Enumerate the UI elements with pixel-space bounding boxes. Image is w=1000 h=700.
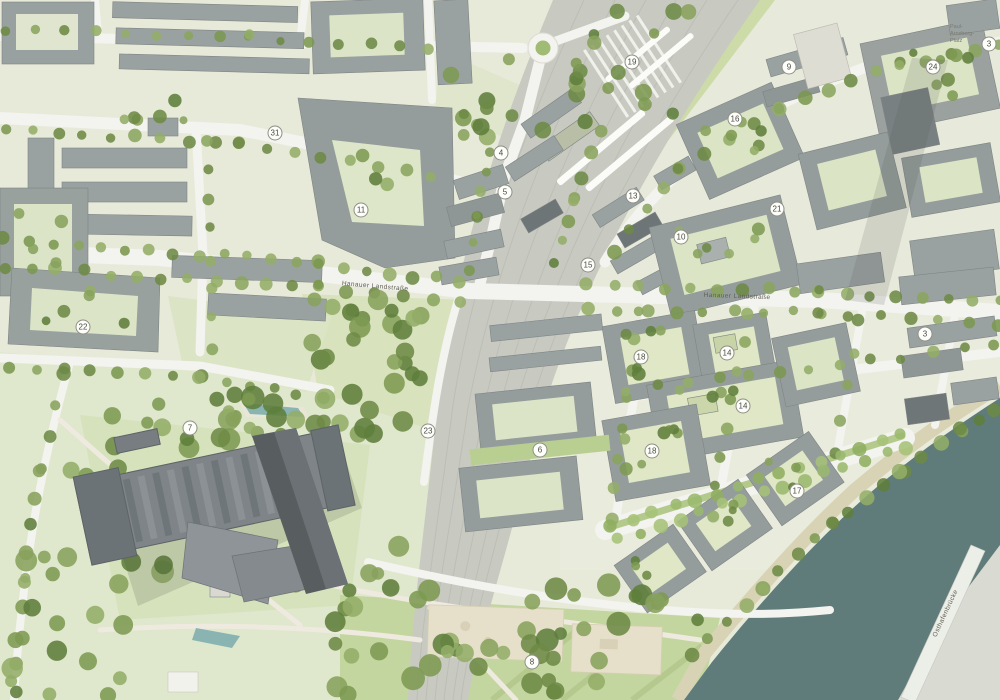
tree-icon <box>681 4 697 20</box>
tree-icon <box>602 82 614 94</box>
tree-icon <box>32 365 42 375</box>
tree-icon <box>642 204 652 214</box>
tree-icon <box>621 387 630 396</box>
tree-icon <box>263 393 284 414</box>
tree-icon <box>324 299 340 315</box>
tree-icon <box>168 371 178 381</box>
tree-icon <box>667 108 679 120</box>
tree-icon <box>183 136 196 149</box>
tree-icon <box>698 308 708 318</box>
tree-icon <box>47 641 67 661</box>
tree-icon <box>380 178 394 192</box>
tree-icon <box>714 372 726 384</box>
tree-icon <box>203 164 213 174</box>
tree-icon <box>360 401 379 420</box>
tree-icon <box>964 317 976 329</box>
tree-icon <box>152 398 165 411</box>
tree-icon <box>8 632 24 648</box>
tree-icon <box>396 343 414 361</box>
tree-icon <box>344 648 360 664</box>
tree-icon <box>405 310 422 327</box>
tree-icon <box>610 4 625 19</box>
tree-icon <box>947 90 958 101</box>
tree-icon <box>57 547 77 567</box>
tree-icon <box>53 128 65 140</box>
tree-icon <box>401 666 425 690</box>
tree-icon <box>624 224 634 234</box>
marker-number: 11 <box>357 206 366 215</box>
map-marker-7[interactable]: 7 <box>183 421 197 435</box>
tree-icon <box>143 244 155 256</box>
tree-icon <box>235 276 249 290</box>
tree-icon <box>0 263 11 274</box>
tree-icon <box>220 249 230 259</box>
tree-icon <box>206 343 218 355</box>
tree-icon <box>733 481 743 491</box>
tree-icon <box>307 293 321 307</box>
marker-number: 14 <box>739 402 748 411</box>
tree-icon <box>646 326 657 337</box>
tree-icon <box>645 593 665 613</box>
marker-number: 18 <box>648 447 657 456</box>
tree-icon <box>382 579 400 597</box>
tree-icon <box>422 44 433 55</box>
tree-icon <box>388 536 409 557</box>
tree-icon <box>14 208 25 219</box>
tree-icon <box>524 594 540 610</box>
tree-icon <box>578 114 593 129</box>
tree-icon <box>315 388 336 409</box>
tree-icon <box>728 386 739 397</box>
tree-icon <box>844 74 858 88</box>
tree-icon <box>56 366 70 380</box>
tree-icon <box>427 293 440 306</box>
tree-icon <box>743 370 754 381</box>
tree-icon <box>789 287 800 298</box>
tree-icon <box>792 548 805 561</box>
tree-icon <box>49 615 65 631</box>
tree-icon <box>182 273 192 283</box>
tree-icon <box>168 94 181 107</box>
tree-icon <box>562 215 576 229</box>
tree-icon <box>607 612 631 636</box>
place-label: Paul- <box>950 24 963 30</box>
tree-icon <box>342 384 363 405</box>
tree-icon <box>3 362 15 374</box>
tree-icon <box>962 52 974 64</box>
tree-icon <box>287 411 305 429</box>
tree-icon <box>633 280 644 291</box>
roundabout <box>528 33 558 63</box>
tree-icon <box>722 617 732 627</box>
tree-icon <box>120 115 130 125</box>
place-label: Arnsberg- <box>950 31 974 37</box>
tree-icon <box>752 223 765 236</box>
tree-icon <box>38 551 51 564</box>
tree-icon <box>303 37 314 48</box>
tree-icon <box>356 149 370 163</box>
tree-icon <box>597 573 620 596</box>
tree-icon <box>567 588 581 602</box>
tree-icon <box>817 465 830 478</box>
map-marker-10[interactable]: 10 <box>674 230 688 244</box>
tree-icon <box>987 404 1000 417</box>
tree-icon <box>741 308 753 320</box>
tree-icon <box>184 31 193 40</box>
tree-icon <box>211 428 231 448</box>
tree-icon <box>612 454 623 465</box>
tree-icon <box>106 271 116 281</box>
tree-icon <box>244 422 256 434</box>
tree-icon <box>659 284 671 296</box>
tree-icon <box>180 116 188 124</box>
tree-icon <box>313 258 324 269</box>
tree-icon <box>443 67 460 84</box>
map-marker-5[interactable]: 5 <box>498 185 512 199</box>
tree-icon <box>804 365 813 374</box>
tree-icon <box>617 423 627 433</box>
tree-icon <box>10 686 23 699</box>
tree-icon <box>345 155 356 166</box>
tree-icon <box>638 97 652 111</box>
tree-icon <box>835 360 845 370</box>
tree-icon <box>714 452 725 463</box>
tree-icon <box>325 611 346 632</box>
marker-number: 19 <box>628 58 637 67</box>
tree-icon <box>459 109 469 119</box>
tree-icon <box>949 49 963 63</box>
tree-icon <box>549 258 559 268</box>
tree-icon <box>654 519 668 533</box>
tree-icon <box>96 242 106 252</box>
tree-icon <box>214 31 226 43</box>
tree-icon <box>384 373 405 394</box>
tree-icon <box>401 164 414 177</box>
tree-icon <box>579 277 592 290</box>
tree-icon <box>20 573 30 583</box>
tree-icon <box>545 577 568 600</box>
tree-icon <box>426 172 436 182</box>
tree-icon <box>822 83 836 97</box>
tree-icon <box>262 144 272 154</box>
tree-icon <box>455 296 467 308</box>
tree-icon <box>46 567 60 581</box>
tree-icon <box>441 645 454 658</box>
tree-icon <box>406 271 420 285</box>
tree-icon <box>431 271 443 283</box>
tree-icon <box>620 462 633 475</box>
tree-icon <box>859 455 871 467</box>
tree-icon <box>242 251 251 260</box>
tree-icon <box>292 257 303 268</box>
map-marker-4[interactable]: 4 <box>494 146 508 160</box>
tree-icon <box>693 249 703 259</box>
tree-icon <box>342 584 356 598</box>
tree-icon <box>574 171 588 185</box>
tree-icon <box>554 627 567 640</box>
map-marker-15[interactable]: 15 <box>581 258 595 272</box>
tree-icon <box>899 441 913 455</box>
marker-number: 10 <box>677 233 686 242</box>
tree-icon <box>128 111 141 124</box>
tree-icon <box>693 506 703 516</box>
tree-icon <box>343 596 364 617</box>
tree-icon <box>627 514 639 526</box>
tree-icon <box>876 310 886 320</box>
tree-icon <box>865 354 876 365</box>
tree-icon <box>291 390 302 401</box>
tree-icon <box>568 195 579 206</box>
tree-icon <box>642 571 651 580</box>
marker-number: 3 <box>987 40 992 49</box>
tree-icon <box>338 262 350 274</box>
tree-icon <box>729 304 741 316</box>
marker-number: 5 <box>503 188 508 197</box>
tree-icon <box>909 49 917 57</box>
tree-icon <box>571 58 582 69</box>
tree-icon <box>688 494 703 509</box>
tree-icon <box>194 250 206 262</box>
marker-number: 31 <box>271 129 280 138</box>
tree-icon <box>77 130 86 139</box>
tree-icon <box>51 257 62 268</box>
map-marker-11[interactable]: 11 <box>354 203 368 217</box>
tree-icon <box>892 464 907 479</box>
tree-icon <box>835 450 845 460</box>
tree-icon <box>967 295 979 307</box>
map-marker-3[interactable]: 3 <box>982 37 996 51</box>
tree-icon <box>842 380 853 391</box>
tree-icon <box>631 562 640 571</box>
place-label: Platz <box>950 38 962 44</box>
tree-icon <box>33 465 46 478</box>
tree-icon <box>227 387 243 403</box>
tree-icon <box>205 256 216 267</box>
tree-icon <box>28 244 38 254</box>
tree-icon <box>750 146 759 155</box>
map-marker-3[interactable]: 3 <box>918 327 932 341</box>
tree-icon <box>418 580 440 602</box>
tree-icon <box>329 637 343 651</box>
map-marker-14[interactable]: 14 <box>720 346 734 360</box>
tree-icon <box>333 39 344 50</box>
tree-icon <box>581 302 595 316</box>
tree-icon <box>109 574 128 593</box>
tree-icon <box>155 133 166 144</box>
tree-icon <box>84 364 96 376</box>
map-marker-24[interactable]: 24 <box>926 60 940 74</box>
tree-icon <box>612 533 623 544</box>
tree-icon <box>871 65 883 77</box>
tree-icon <box>222 378 232 388</box>
tree-icon <box>480 639 498 657</box>
tree-icon <box>877 478 890 491</box>
tree-icon <box>141 417 153 429</box>
tree-icon <box>50 400 60 410</box>
tree-icon <box>405 366 420 381</box>
tree-icon <box>656 325 666 335</box>
tree-icon <box>889 290 902 303</box>
tree-icon <box>895 428 906 439</box>
map-marker-18[interactable]: 18 <box>634 350 648 364</box>
tree-icon <box>315 152 327 164</box>
tree-icon <box>503 53 515 65</box>
tree-icon <box>128 129 142 143</box>
marker-number: 17 <box>793 487 802 496</box>
tree-icon <box>206 283 217 294</box>
tree-icon <box>192 371 205 384</box>
map-marker-14[interactable]: 14 <box>736 399 750 413</box>
tree-icon <box>759 309 768 318</box>
marker-number: 23 <box>424 427 433 436</box>
tree-icon <box>368 290 388 310</box>
map-marker-21[interactable]: 21 <box>770 202 784 216</box>
tree-icon <box>111 366 124 379</box>
tree-icon <box>547 682 564 699</box>
tree-icon <box>456 644 474 662</box>
tree-icon <box>372 567 385 580</box>
tree-icon <box>883 447 893 457</box>
tree-icon <box>473 212 481 220</box>
tree-icon <box>700 125 711 136</box>
map-marker-9[interactable]: 9 <box>782 60 796 74</box>
tree-icon <box>318 349 335 366</box>
tree-icon <box>842 507 854 519</box>
tree-icon <box>587 36 601 50</box>
tree-icon <box>673 163 684 174</box>
marker-number: 7 <box>188 424 193 433</box>
tree-icon <box>472 118 489 135</box>
tree-icon <box>621 329 632 340</box>
tree-icon <box>671 499 682 510</box>
tree-icon <box>1 124 11 134</box>
map-marker-16[interactable]: 16 <box>728 112 742 126</box>
map-marker-19[interactable]: 19 <box>625 55 639 69</box>
tree-icon <box>849 348 859 358</box>
tree-icon <box>960 342 970 352</box>
tree-icon <box>482 168 491 177</box>
tree-icon <box>152 31 162 41</box>
tree-icon <box>113 615 133 635</box>
tree-icon <box>346 332 361 347</box>
tree-icon <box>86 606 104 624</box>
tree-icon <box>15 550 37 572</box>
map-marker-22[interactable]: 22 <box>76 320 90 334</box>
tree-icon <box>753 472 765 484</box>
tree-icon <box>276 37 284 45</box>
tree-icon <box>721 423 734 436</box>
marker-number: 16 <box>731 115 740 124</box>
tree-icon <box>953 421 967 435</box>
tree-icon <box>619 433 630 444</box>
tree-icon <box>534 122 551 139</box>
marker-number: 14 <box>723 349 732 358</box>
tree-icon <box>119 318 130 329</box>
tree-icon <box>167 249 179 261</box>
tree-icon <box>370 642 388 660</box>
tree-icon <box>636 529 646 539</box>
tree-icon <box>362 267 372 277</box>
tree-icon <box>475 186 486 197</box>
tree-icon <box>674 513 688 527</box>
tree-icon <box>610 280 621 291</box>
tree-icon <box>774 366 786 378</box>
tree-icon <box>837 462 848 473</box>
tree-icon <box>645 506 658 519</box>
tree-icon <box>31 25 40 34</box>
tree-icon <box>131 271 143 283</box>
tree-icon <box>612 306 622 316</box>
tree-icon <box>290 147 301 158</box>
tree-icon <box>55 215 68 228</box>
tree-icon <box>697 147 711 161</box>
map-marker-6[interactable]: 6 <box>533 443 547 457</box>
tree-icon <box>372 161 384 173</box>
map-marker-18[interactable]: 18 <box>645 444 659 458</box>
marker-number: 18 <box>637 353 646 362</box>
tree-icon <box>590 652 608 670</box>
tree-icon <box>665 3 682 20</box>
tree-icon <box>84 290 95 301</box>
tree-icon <box>896 355 905 364</box>
marker-number: 15 <box>584 261 593 270</box>
tree-icon <box>44 430 57 443</box>
tree-icon <box>933 315 943 325</box>
tree-icon <box>121 30 130 39</box>
marker-number: 13 <box>629 192 638 201</box>
tree-icon <box>726 130 737 141</box>
marker-number: 22 <box>79 323 88 332</box>
tree-icon <box>233 137 245 149</box>
tree-icon <box>658 182 671 195</box>
tree-icon <box>265 253 276 264</box>
map-marker-23[interactable]: 23 <box>421 424 435 438</box>
tree-icon <box>394 40 405 51</box>
tree-icon <box>724 249 734 259</box>
tree-icon <box>642 304 655 317</box>
tree-icon <box>385 304 399 318</box>
tree-icon <box>242 393 255 406</box>
marker-number: 24 <box>929 63 938 72</box>
tree-icon <box>988 340 999 351</box>
tree-icon <box>834 415 846 427</box>
tree-icon <box>665 425 674 434</box>
tree-icon <box>453 276 466 289</box>
map-marker-17[interactable]: 17 <box>790 484 804 498</box>
map-marker-13[interactable]: 13 <box>626 189 640 203</box>
tree-icon <box>303 334 321 352</box>
marker-number: 4 <box>499 149 504 158</box>
tree-icon <box>205 222 214 231</box>
tree-icon <box>480 101 494 115</box>
tree-icon <box>914 451 927 464</box>
tree-icon <box>810 533 820 543</box>
tree-icon <box>104 407 121 424</box>
map-marker-31[interactable]: 31 <box>268 126 282 140</box>
map-marker-8[interactable]: 8 <box>525 655 539 669</box>
tree-icon <box>685 283 695 293</box>
tree-icon <box>314 280 324 290</box>
tree-icon <box>740 598 755 613</box>
tree-icon <box>287 280 298 291</box>
tree-icon <box>5 675 17 687</box>
tree-icon <box>765 458 773 466</box>
tree-icon <box>113 671 127 685</box>
masterplan-map: Hanauer LandstraßeHanauer LandstraßeOsth… <box>0 0 1000 700</box>
tree-icon <box>209 392 224 407</box>
tree-icon <box>469 238 478 247</box>
tree-icon <box>203 194 215 206</box>
